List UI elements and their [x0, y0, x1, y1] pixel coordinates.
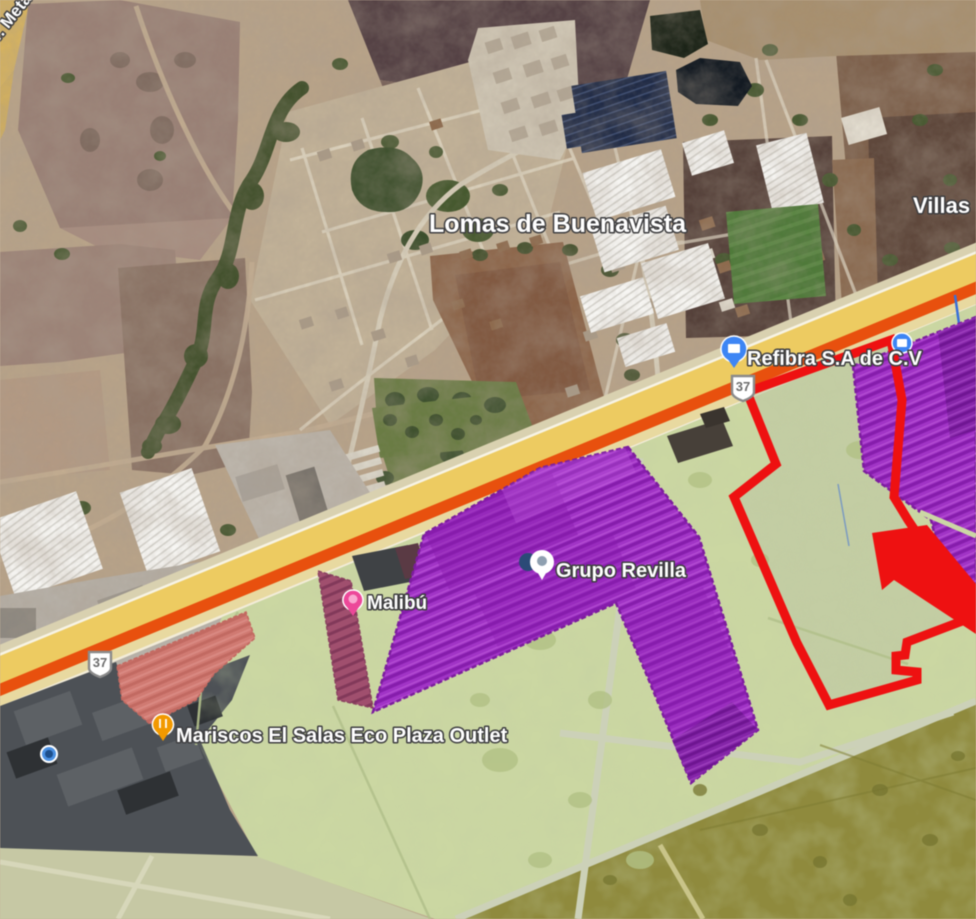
svg-text:Villas: Villas: [913, 193, 970, 218]
svg-text:Grupo Revilla: Grupo Revilla: [556, 560, 687, 582]
svg-text:Refibra S.A de C.V: Refibra S.A de C.V: [747, 348, 923, 370]
svg-text:Malibú: Malibú: [367, 593, 427, 614]
svg-text:37: 37: [736, 379, 750, 394]
svg-text:Lomas de Buenavista: Lomas de Buenavista: [429, 210, 687, 238]
svg-text:37: 37: [93, 655, 107, 670]
svg-text:Mariscos El Salas Eco Plaza Ou: Mariscos El Salas Eco Plaza Outlet: [176, 725, 508, 747]
